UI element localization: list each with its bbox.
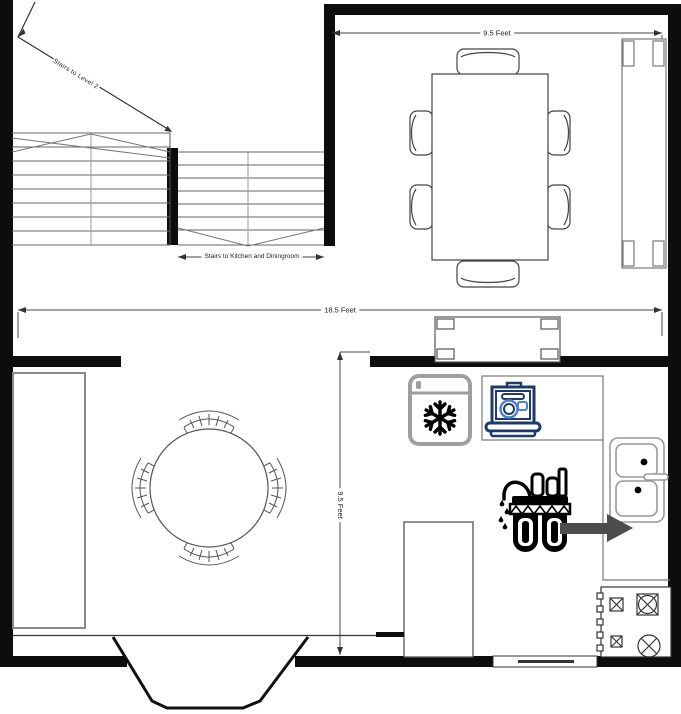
stairs-dining-wall — [324, 4, 335, 246]
water-filter-icon — [499, 469, 570, 552]
interior-wall-left — [13, 356, 121, 367]
dining-chair-right-lower — [547, 185, 570, 229]
peninsula-counter — [376, 522, 473, 657]
faucet-lever — [644, 474, 668, 480]
dishwasher-icon — [486, 383, 540, 436]
bottom-wall-right — [597, 656, 681, 667]
floor-plan: 9.5 Feet 18.5 Feet 9.5 Feet Stairs to Ki… — [0, 0, 681, 714]
bottom-window — [493, 656, 597, 667]
water-drops-icon — [499, 500, 510, 529]
top-wall — [330, 4, 681, 15]
sink-drain-top — [641, 459, 648, 466]
console-table — [435, 317, 560, 362]
left-counter — [13, 373, 85, 628]
bottom-wall-mid — [295, 656, 493, 667]
dining-table — [432, 74, 548, 260]
freezer-icon — [410, 376, 470, 444]
dining-chair-bottom — [457, 261, 519, 287]
stairs-upper-flight — [12, 133, 170, 245]
threshold-bar — [376, 632, 404, 637]
dining-table-set — [410, 49, 570, 287]
floorplan-canvas — [0, 0, 681, 714]
bottom-wall-left — [0, 656, 127, 667]
dining-chair-right-upper — [547, 111, 570, 155]
dining-width-label: 9.5 Feet — [480, 29, 514, 37]
round-table — [150, 429, 268, 547]
left-wall — [0, 0, 13, 667]
stairs-lower-flight — [178, 152, 324, 246]
sink — [610, 438, 668, 522]
filter-cartridges — [513, 514, 567, 552]
dining-chair-left-upper — [410, 111, 433, 155]
dining-chair-top — [457, 49, 519, 75]
total-width-label: 18.5 Feet — [321, 306, 359, 314]
stairs-direction-arrow — [18, 2, 172, 132]
stairs-divider-wall — [167, 148, 178, 245]
dining-chair-left-lower — [410, 185, 433, 229]
sideboard — [622, 39, 666, 268]
stove — [597, 587, 671, 657]
bay-window — [113, 637, 308, 708]
sink-drain-bottom — [635, 487, 642, 494]
kitchen-depth-label: 9.5 Feet — [336, 488, 344, 522]
round-table-set — [132, 411, 286, 565]
stairs-down-label: Stairs to Kitchen and Diningroom — [201, 254, 302, 261]
right-wall — [668, 4, 681, 667]
